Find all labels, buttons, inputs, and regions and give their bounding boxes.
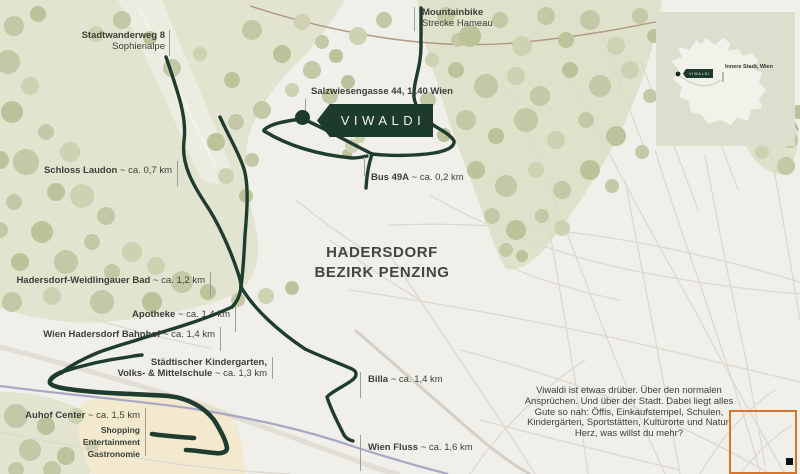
- mountainbike-sub: Strecke Hameau: [422, 18, 493, 29]
- region-line1: HADERSDORF: [326, 244, 438, 261]
- apotheke-distance: ~ ca. 1,4 km: [178, 309, 230, 320]
- kindergarten-line1: Städtischer Kindergarten,: [151, 357, 267, 368]
- tick-kindergarten: [272, 357, 273, 379]
- tick-apotheke: [235, 306, 236, 332]
- label-auhof: Auhof Center ~ ca. 1,5 km Shopping Enter…: [25, 410, 140, 460]
- viwaldi-banner: VIWALDI: [317, 104, 433, 137]
- label-kindergarten: Städtischer Kindergarten, Volks- & Mitte…: [118, 357, 268, 379]
- label-bad: Hadersdorf-Weidlingauer Bad ~ ca. 1,2 km: [16, 275, 205, 286]
- tick-schloss-laudon: [177, 161, 178, 186]
- label-bus: Bus 49A ~ ca. 0,2 km: [371, 172, 464, 183]
- label-schloss-laudon: Schloss Laudon ~ ca. 0,7 km: [44, 165, 172, 176]
- auhof-tag-entertainment: Entertainment: [83, 437, 140, 447]
- label-apotheke: Apotheke ~ ca. 1,4 km: [132, 309, 230, 320]
- label-mountainbike: Mountainbike Strecke Hameau: [422, 7, 493, 29]
- kindergarten-distance2: ~ ca. 1,3 km: [215, 368, 267, 379]
- schloss-distance: ~ ca. 0,7 km: [120, 165, 172, 176]
- auhof-tag-gastronomie: Gastronomie: [88, 449, 140, 459]
- tick-wien-fluss: [360, 435, 361, 471]
- label-wien-fluss: Wien Fluss ~ ca. 1,6 km: [368, 442, 473, 453]
- label-billa: Billa ~ ca. 1,4 km: [368, 374, 443, 385]
- inset-city-label: Innere Stadt, Wien: [725, 64, 773, 70]
- location-map: Stadtwanderweg 8 Sophienalpe Mountainbik…: [0, 0, 800, 474]
- tick-auhof: [145, 408, 146, 456]
- billa-distance: ~ ca. 1,4 km: [391, 374, 443, 385]
- annotation-resize-handle[interactable]: [786, 458, 793, 465]
- fluss-name: Wien Fluss: [368, 442, 418, 453]
- label-address: Salzwiesengasse 44, 1140 Wien: [311, 86, 453, 97]
- tick-billa: [360, 372, 361, 398]
- bad-name: Hadersdorf-Weidlingauer Bad: [16, 275, 150, 286]
- stadtwanderweg-sub: Sophienalpe: [112, 41, 165, 52]
- label-bahnhof: Wien Hadersdorf Bahnhof ~ ca. 1,4 km: [43, 329, 215, 340]
- mountainbike-name: Mountainbike: [422, 7, 483, 18]
- kindergarten-name2: Volks- & Mittelschule: [118, 368, 213, 379]
- marketing-text: Viwaldi ist etwas drüber. Über den norma…: [518, 386, 740, 440]
- tick-stadtwanderweg: [169, 30, 170, 56]
- viwaldi-banner-text: VIWALDI: [325, 113, 425, 128]
- region-line2: BEZIRK PENZING: [314, 264, 449, 281]
- bus-distance: ~ ca. 0,2 km: [412, 172, 464, 183]
- auhof-distance: ~ ca. 1,5 km: [88, 410, 140, 421]
- inset-marker-icon: [676, 72, 681, 77]
- bus-name: Bus 49A: [371, 172, 409, 183]
- auhof-name: Auhof Center: [25, 410, 85, 421]
- bahnhof-distance: ~ ca. 1,4 km: [163, 329, 215, 340]
- tick-bad: [210, 272, 211, 297]
- region-title: HADERSDORF BEZIRK PENZING: [232, 243, 532, 283]
- bad-distance: ~ ca. 1,2 km: [153, 275, 205, 286]
- billa-name: Billa: [368, 374, 388, 385]
- inset-tag-label: VIWALDI: [686, 70, 713, 79]
- stadtwanderweg-name: Stadtwanderweg 8: [82, 30, 165, 41]
- label-stadtwanderweg: Stadtwanderweg 8 Sophienalpe: [82, 30, 165, 52]
- tick-address: [305, 99, 306, 111]
- auhof-tag-shopping: Shopping: [101, 425, 140, 435]
- auhof-tags: Shopping Entertainment Gastronomie: [25, 424, 140, 460]
- fluss-distance: ~ ca. 1,6 km: [421, 442, 473, 453]
- tick-bus: [364, 157, 365, 176]
- tick-bahnhof: [220, 327, 221, 351]
- inset-artwork: [656, 12, 795, 146]
- viwaldi-marker-icon: [295, 110, 310, 125]
- bahnhof-name: Wien Hadersdorf Bahnhof: [43, 329, 160, 340]
- schloss-name: Schloss Laudon: [44, 165, 117, 176]
- apotheke-name: Apotheke: [132, 309, 175, 320]
- inset-overview-map: VIWALDI Innere Stadt, Wien: [656, 12, 795, 146]
- tick-mountainbike: [414, 7, 415, 31]
